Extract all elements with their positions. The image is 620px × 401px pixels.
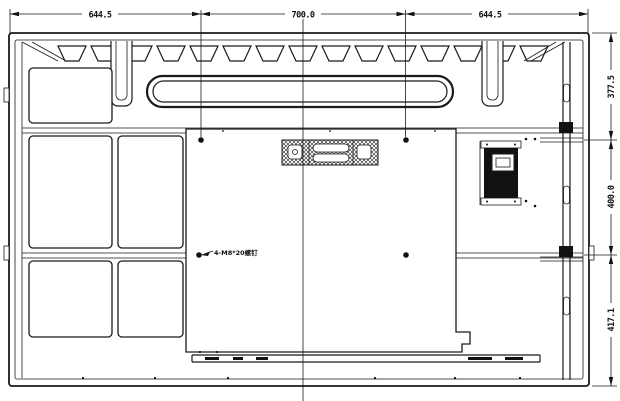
technical-drawing: 4-M8*20螺钉 644.5 700.0 644.5 bbox=[0, 0, 620, 401]
vent-channel-right bbox=[482, 41, 503, 106]
rib-top-left bbox=[29, 68, 112, 123]
handle-inner bbox=[153, 81, 447, 102]
rib-low-left bbox=[29, 261, 112, 337]
hatch-slot-left bbox=[288, 145, 302, 159]
hatch-slot-mid-bottom bbox=[313, 154, 349, 162]
vesa-hole-bottom-right bbox=[403, 252, 409, 258]
power-module bbox=[480, 138, 536, 208]
rail-bracket-upper bbox=[559, 122, 573, 133]
rail-slot-1 bbox=[564, 84, 570, 102]
rib-mid-center bbox=[118, 136, 183, 248]
dim-right-middle: 400.0 bbox=[607, 185, 617, 208]
handle-recess bbox=[147, 76, 453, 107]
dim-top-right: 644.5 bbox=[478, 11, 501, 21]
rib-low-center bbox=[118, 261, 183, 337]
dim-top-left: 644.5 bbox=[88, 11, 111, 21]
top-dimension: 644.5 700.0 644.5 bbox=[10, 8, 588, 33]
hatch-slot-mid-top bbox=[313, 144, 349, 152]
module-window bbox=[492, 154, 514, 171]
dim-top-center: 700.0 bbox=[291, 11, 314, 21]
right-mount-rail bbox=[540, 42, 583, 380]
vesa-screw-label: 4-M8*20螺钉 bbox=[214, 248, 258, 257]
vesa-hole-top-left bbox=[198, 137, 204, 143]
vesa-hole-top-right bbox=[403, 137, 409, 143]
vesa-hole-bottom-left bbox=[196, 252, 202, 258]
hatch-slot-right bbox=[357, 145, 371, 159]
dim-right-top: 377.5 bbox=[607, 75, 617, 98]
right-tab-lower bbox=[589, 246, 594, 260]
vent-channel-left bbox=[111, 41, 132, 106]
rail-slot-3 bbox=[564, 297, 570, 315]
hatched-vent-block bbox=[282, 140, 378, 165]
left-tab-upper bbox=[4, 88, 9, 102]
rail-bracket-lower bbox=[559, 246, 573, 257]
left-tab-lower bbox=[4, 246, 9, 260]
dim-right-bottom: 417.1 bbox=[607, 308, 617, 331]
left-panel-ribs bbox=[29, 68, 183, 337]
rail-slot-2 bbox=[564, 186, 570, 204]
rib-mid-left bbox=[29, 136, 112, 248]
drawing-canvas: 4-M8*20螺钉 644.5 700.0 644.5 bbox=[0, 0, 620, 401]
